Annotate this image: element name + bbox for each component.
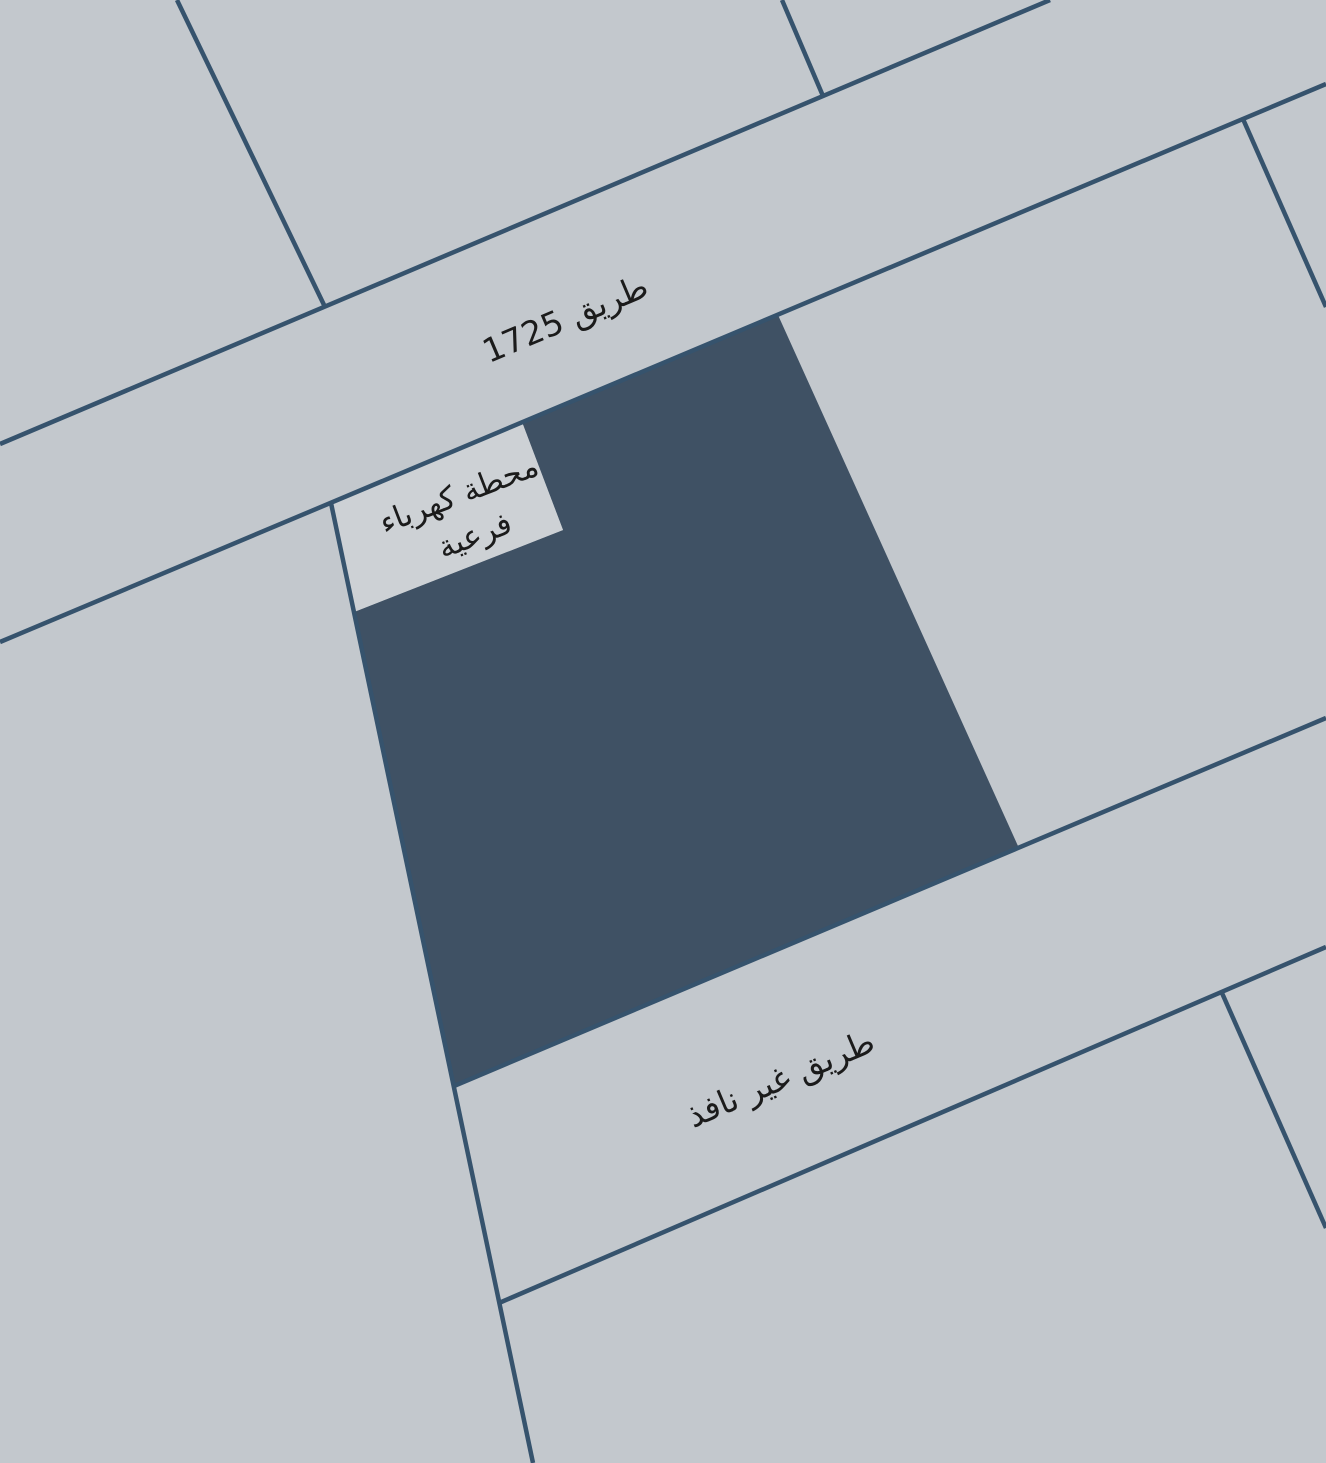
- parcel-map[interactable]: طريق 1725 محطة كهرباء فرعية طريق غير ناف…: [0, 0, 1326, 1463]
- map-canvas[interactable]: طريق 1725 محطة كهرباء فرعية طريق غير ناف…: [0, 0, 1326, 1463]
